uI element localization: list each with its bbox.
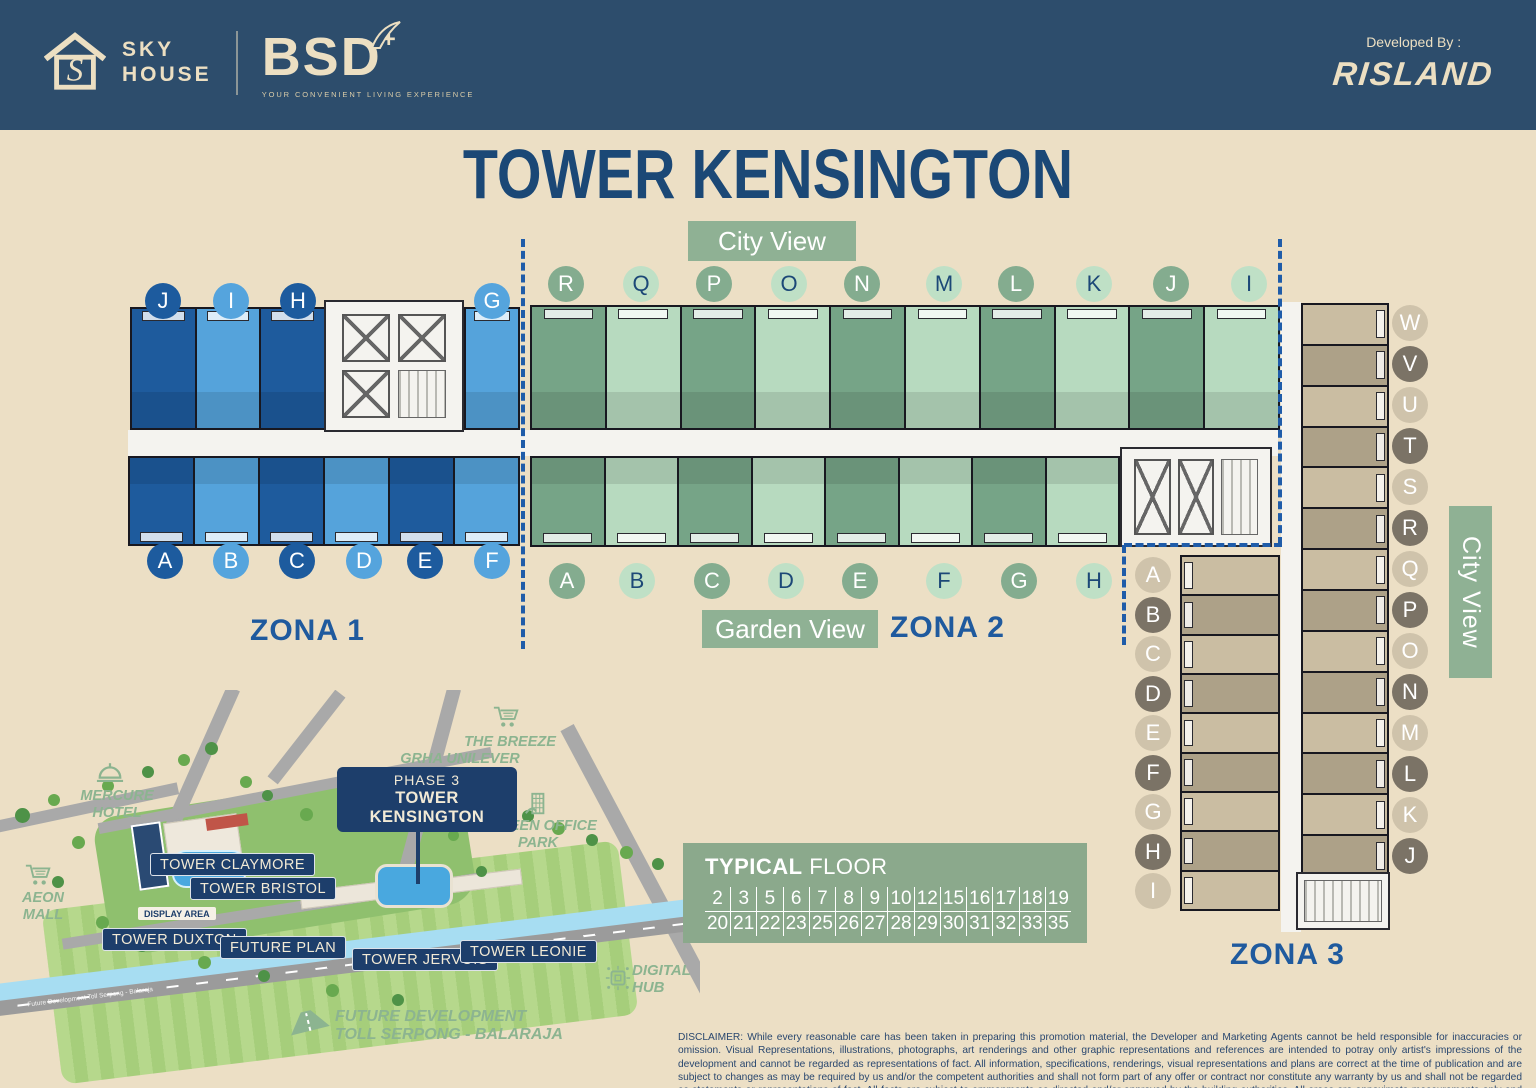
- unit-g: [464, 307, 520, 430]
- unit-g: [971, 456, 1047, 547]
- unit-letter-p: P: [696, 266, 732, 302]
- unit-letter-i: I: [1231, 266, 1267, 302]
- unit-k: [1301, 793, 1389, 836]
- floor-number: 23: [783, 912, 809, 937]
- unit-letter-i: I: [1135, 873, 1171, 909]
- unit-b: [193, 456, 260, 546]
- unit-letter-j: J: [1392, 838, 1428, 874]
- unit-letter-u: U: [1392, 387, 1428, 423]
- page-title: TOWER KENSINGTON: [463, 134, 1073, 214]
- zona3-right-units: [1301, 303, 1389, 877]
- zona3-core: [1296, 872, 1390, 930]
- floor-number: 17: [993, 887, 1019, 912]
- zona1-label: ZONA 1: [250, 614, 365, 648]
- unit-o: [1301, 630, 1389, 673]
- unit-p: [1301, 589, 1389, 632]
- unit-m: [904, 305, 981, 430]
- unit-v: [1301, 344, 1389, 387]
- unit-w: [1301, 303, 1389, 346]
- unit-letter-i: I: [213, 283, 249, 319]
- floor-number: 30: [940, 912, 966, 937]
- floor-number: 18: [1019, 887, 1045, 912]
- brand-divider: [236, 31, 238, 95]
- unit-s: [1301, 466, 1389, 509]
- unit-letter-e: E: [1135, 715, 1171, 751]
- floor-number: 19: [1045, 887, 1071, 912]
- unit-letter-r: R: [1392, 510, 1428, 546]
- zona1-bottom-units: [128, 456, 520, 546]
- floor-number: 27: [862, 912, 888, 937]
- unit-e: [824, 456, 900, 547]
- unit-b: [1180, 594, 1280, 635]
- floor-number: 8: [836, 887, 862, 912]
- unit-letter-g: G: [474, 283, 510, 319]
- unit-letter-o: O: [771, 266, 807, 302]
- unit-i: [1180, 870, 1280, 911]
- unit-r: [1301, 507, 1389, 550]
- floor-number: 20: [705, 912, 731, 937]
- unit-m: [1301, 712, 1389, 755]
- unit-letter-j: J: [1153, 266, 1189, 302]
- unit-letter-f: F: [1135, 755, 1171, 791]
- typical-floor-row1: 235678910121516171819: [705, 887, 1071, 912]
- floor-number: 16: [967, 887, 993, 912]
- unit-letter-o: O: [1392, 633, 1428, 669]
- bsd-leaf-icon: [370, 20, 404, 50]
- unit-letter-c: C: [694, 563, 730, 599]
- unit-f: [1180, 752, 1280, 793]
- unit-r: [530, 305, 607, 430]
- unit-c: [677, 456, 753, 547]
- unit-h: [1045, 456, 1121, 547]
- zona3-corridor: [1281, 302, 1301, 932]
- unit-f: [898, 456, 974, 547]
- unit-letter-d: D: [1135, 676, 1171, 712]
- unit-letter-h: H: [280, 283, 316, 319]
- typical-floor-table: 235678910121516171819 202122232526272829…: [705, 887, 1071, 936]
- unit-a: [1180, 555, 1280, 596]
- zona1-top-units: [130, 307, 326, 430]
- floor-number: 6: [783, 887, 809, 912]
- risland-logo: RISLAND: [1331, 55, 1496, 93]
- unit-letter-c: C: [1135, 636, 1171, 672]
- floor-number: 21: [731, 912, 757, 937]
- floor-number: 33: [1019, 912, 1045, 937]
- brand-house-line: HOUSE: [122, 63, 212, 88]
- unit-letter-d: D: [346, 543, 382, 579]
- unit-d: [323, 456, 390, 546]
- unit-letter-t: T: [1392, 428, 1428, 464]
- unit-t: [1301, 426, 1389, 469]
- floor-number: 28: [888, 912, 914, 937]
- zona2-bottom-units: [530, 456, 1120, 547]
- unit-letter-r: R: [548, 266, 584, 302]
- unit-d: [1180, 673, 1280, 714]
- typical-floor-title-rest: FLOOR: [803, 854, 888, 879]
- city-view-top-label: City View: [688, 221, 856, 261]
- typical-floor-row2: 2021222325262728293031323335: [705, 912, 1071, 937]
- sky-house-wordmark: SKY HOUSE: [122, 38, 212, 88]
- unit-e: [1180, 712, 1280, 753]
- unit-letter-h: H: [1076, 563, 1112, 599]
- zona3-label: ZONA 3: [1230, 938, 1345, 972]
- floor-number: 3: [731, 887, 757, 912]
- elevator-icon: [342, 314, 390, 362]
- typical-floor-title: TYPICAL FLOOR: [705, 854, 1071, 880]
- sky-house-logo-icon: S: [44, 32, 106, 94]
- unit-letter-f: F: [474, 543, 510, 579]
- unit-letter-k: K: [1076, 266, 1112, 302]
- zona2-label: ZONA 2: [890, 611, 1005, 645]
- unit-letter-e: E: [407, 543, 443, 579]
- unit-letter-m: M: [1392, 715, 1428, 751]
- unit-p: [680, 305, 757, 430]
- unit-letter-a: A: [549, 563, 585, 599]
- unit-j: [1301, 834, 1389, 877]
- floor-number: 32: [993, 912, 1019, 937]
- unit-letter-l: L: [998, 266, 1034, 302]
- unit-h: [259, 307, 326, 430]
- floor-number: 31: [967, 912, 993, 937]
- unit-a: [128, 456, 195, 546]
- brand-sky-line: SKY: [122, 38, 212, 63]
- floor-number: 25: [809, 912, 835, 937]
- unit-letter-j: J: [145, 283, 181, 319]
- unit-i: [195, 307, 262, 430]
- unit-letter-v: V: [1392, 346, 1428, 382]
- unit-j: [1128, 305, 1205, 430]
- zone-divider-4: [1122, 545, 1126, 645]
- developer-lockup: Developed By : RISLAND: [1333, 34, 1494, 93]
- unit-letter-e: E: [842, 563, 878, 599]
- bsd-wordmark: BSD+: [262, 28, 475, 84]
- floor-number: 2: [705, 887, 731, 912]
- unit-n: [1301, 671, 1389, 714]
- brand-lockup: S SKY HOUSE BSD+ YOUR CONVENIENT LIVING …: [44, 26, 474, 99]
- unit-g: [1180, 791, 1280, 832]
- unit-c: [258, 456, 325, 546]
- zona3-left-units: [1180, 555, 1280, 911]
- zone-divider-1: [521, 239, 525, 649]
- city-view-right-label: City View: [1449, 506, 1492, 678]
- brand-tagline: YOUR CONVENIENT LIVING EXPERIENCE: [262, 90, 475, 99]
- unit-letter-d: D: [768, 563, 804, 599]
- unit-letter-s: S: [1392, 469, 1428, 505]
- unit-f: [453, 456, 520, 546]
- elevator-icon: [1134, 459, 1171, 535]
- unit-l: [1301, 752, 1389, 795]
- unit-u: [1301, 385, 1389, 428]
- floor-number: 35: [1045, 912, 1071, 937]
- unit-c: [1180, 634, 1280, 675]
- unit-h: [1180, 830, 1280, 871]
- zona1-core: [324, 300, 464, 432]
- typical-floor-panel: TYPICAL FLOOR 235678910121516171819 2021…: [683, 843, 1087, 943]
- unit-letter-p: P: [1392, 592, 1428, 628]
- unit-letter-a: A: [147, 543, 183, 579]
- unit-letter-b: B: [1135, 597, 1171, 633]
- unit-letter-f: F: [926, 563, 962, 599]
- header-bar: S SKY HOUSE BSD+ YOUR CONVENIENT LIVING …: [0, 0, 1536, 130]
- floor-number: 5: [757, 887, 783, 912]
- unit-letter-n: N: [844, 266, 880, 302]
- unit-letter-a: A: [1135, 557, 1171, 593]
- typical-floor-title-bold: TYPICAL: [705, 854, 803, 879]
- unit-letter-h: H: [1135, 834, 1171, 870]
- elevator-icon: [398, 314, 446, 362]
- garden-view-label: Garden View: [702, 610, 878, 648]
- floor-number: 9: [862, 887, 888, 912]
- unit-letter-w: W: [1392, 305, 1428, 341]
- unit-q: [605, 305, 682, 430]
- unit-letter-l: L: [1392, 756, 1428, 792]
- floor-number: 12: [914, 887, 940, 912]
- unit-letter-g: G: [1001, 563, 1037, 599]
- zone-divider-3: [1124, 543, 1282, 547]
- floor-number: 26: [836, 912, 862, 937]
- zona1-top-unit-g: [464, 307, 520, 430]
- floor-number: 22: [757, 912, 783, 937]
- stairs-icon: [398, 370, 446, 418]
- svg-text:S: S: [67, 52, 83, 88]
- stairs-icon: [1304, 880, 1382, 922]
- stairs-icon: [1221, 459, 1258, 535]
- unit-l: [979, 305, 1056, 430]
- main-corridor: [128, 430, 1278, 456]
- floor-number: 29: [914, 912, 940, 937]
- floor-number: 15: [940, 887, 966, 912]
- zone-divider-2: [1278, 239, 1282, 545]
- floor-number: 10: [888, 887, 914, 912]
- unit-letter-k: K: [1392, 797, 1428, 833]
- unit-j: [130, 307, 197, 430]
- unit-o: [754, 305, 831, 430]
- developed-by-label: Developed By :: [1333, 34, 1494, 50]
- unit-d: [751, 456, 827, 547]
- unit-b: [604, 456, 680, 547]
- unit-n: [829, 305, 906, 430]
- zona2-top-units: [530, 305, 1280, 430]
- unit-q: [1301, 548, 1389, 591]
- unit-letter-g: G: [1135, 794, 1171, 830]
- unit-letter-m: M: [926, 266, 962, 302]
- unit-a: [530, 456, 606, 547]
- floor-number: 7: [809, 887, 835, 912]
- unit-letter-c: C: [279, 543, 315, 579]
- unit-i: [1203, 305, 1280, 430]
- elevator-icon: [1178, 459, 1215, 535]
- zona2-core: [1120, 447, 1272, 547]
- bsd-text: BSD: [262, 27, 382, 87]
- unit-letter-q: Q: [623, 266, 659, 302]
- unit-letter-b: B: [619, 563, 655, 599]
- elevator-icon: [342, 370, 390, 418]
- unit-e: [388, 456, 455, 546]
- poster-canvas: S SKY HOUSE BSD+ YOUR CONVENIENT LIVING …: [0, 0, 1536, 1088]
- disclaimer-text: DISCLAIMER: While every reasonable care …: [678, 1031, 1522, 1088]
- bsd-lockup: BSD+ YOUR CONVENIENT LIVING EXPERIENCE: [262, 26, 475, 99]
- unit-k: [1054, 305, 1131, 430]
- unit-letter-q: Q: [1392, 551, 1428, 587]
- unit-letter-n: N: [1392, 674, 1428, 710]
- unit-letter-b: B: [213, 543, 249, 579]
